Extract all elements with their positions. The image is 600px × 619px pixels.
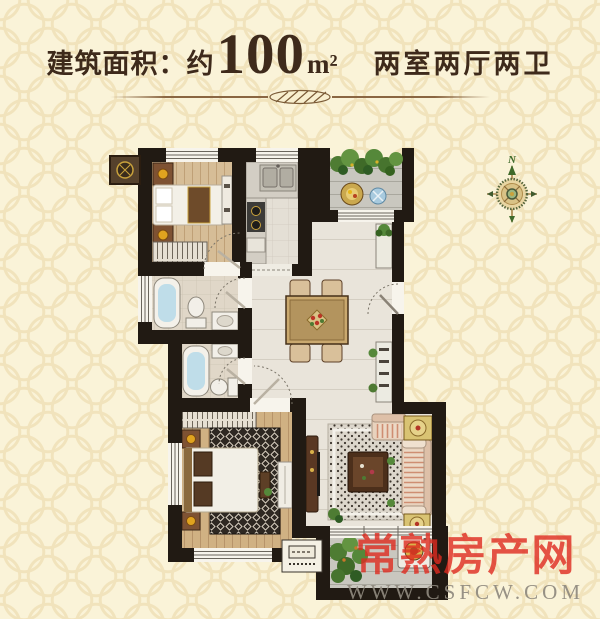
title-divider	[110, 88, 490, 106]
page-title: 建筑面积：约100m²两室两厅两卫	[0, 26, 600, 83]
tv	[317, 452, 320, 496]
compass-north-label: N	[507, 154, 517, 166]
bed-runner	[188, 187, 210, 223]
balcony-top-plants	[330, 149, 403, 176]
plant-icon	[369, 384, 378, 393]
wardrobe	[182, 410, 256, 428]
toilet	[186, 318, 206, 328]
area-prefix: 建筑面积：约	[46, 42, 214, 81]
watermark-site-name: 常熟房产网	[347, 534, 584, 579]
plant-icon	[387, 499, 395, 507]
compass-icon: N	[486, 152, 538, 230]
lamp-icon	[187, 435, 196, 444]
layout-spec: 两室两厅两卫	[374, 42, 554, 81]
lamp-icon	[158, 169, 168, 179]
watermark: 常熟房产网 WWW.CSFCW.COM	[347, 534, 584, 605]
floorplan-poster: 建筑面积：约100m²两室两厅两卫 N 常熟房产网 WWW.CSFCW	[0, 0, 600, 619]
dining-chair	[322, 344, 342, 362]
lamp-icon	[158, 230, 168, 240]
toilet	[228, 378, 238, 396]
plant-icon	[264, 488, 272, 496]
wardrobe	[153, 242, 207, 262]
plant-icon	[387, 457, 395, 465]
dining-chair	[290, 344, 310, 362]
compass-rose: N	[486, 152, 538, 235]
watermark-site-url: WWW.CSFCW.COM	[347, 580, 584, 605]
lamp-icon	[187, 517, 196, 526]
area-value: 100	[216, 26, 305, 83]
area-unit: m²	[307, 49, 338, 80]
rope-ornament-icon	[268, 89, 332, 105]
dresser	[222, 176, 232, 224]
plant-icon	[369, 349, 378, 358]
divider-line	[332, 96, 490, 98]
divider-line	[110, 96, 268, 98]
tv-console	[306, 436, 318, 512]
